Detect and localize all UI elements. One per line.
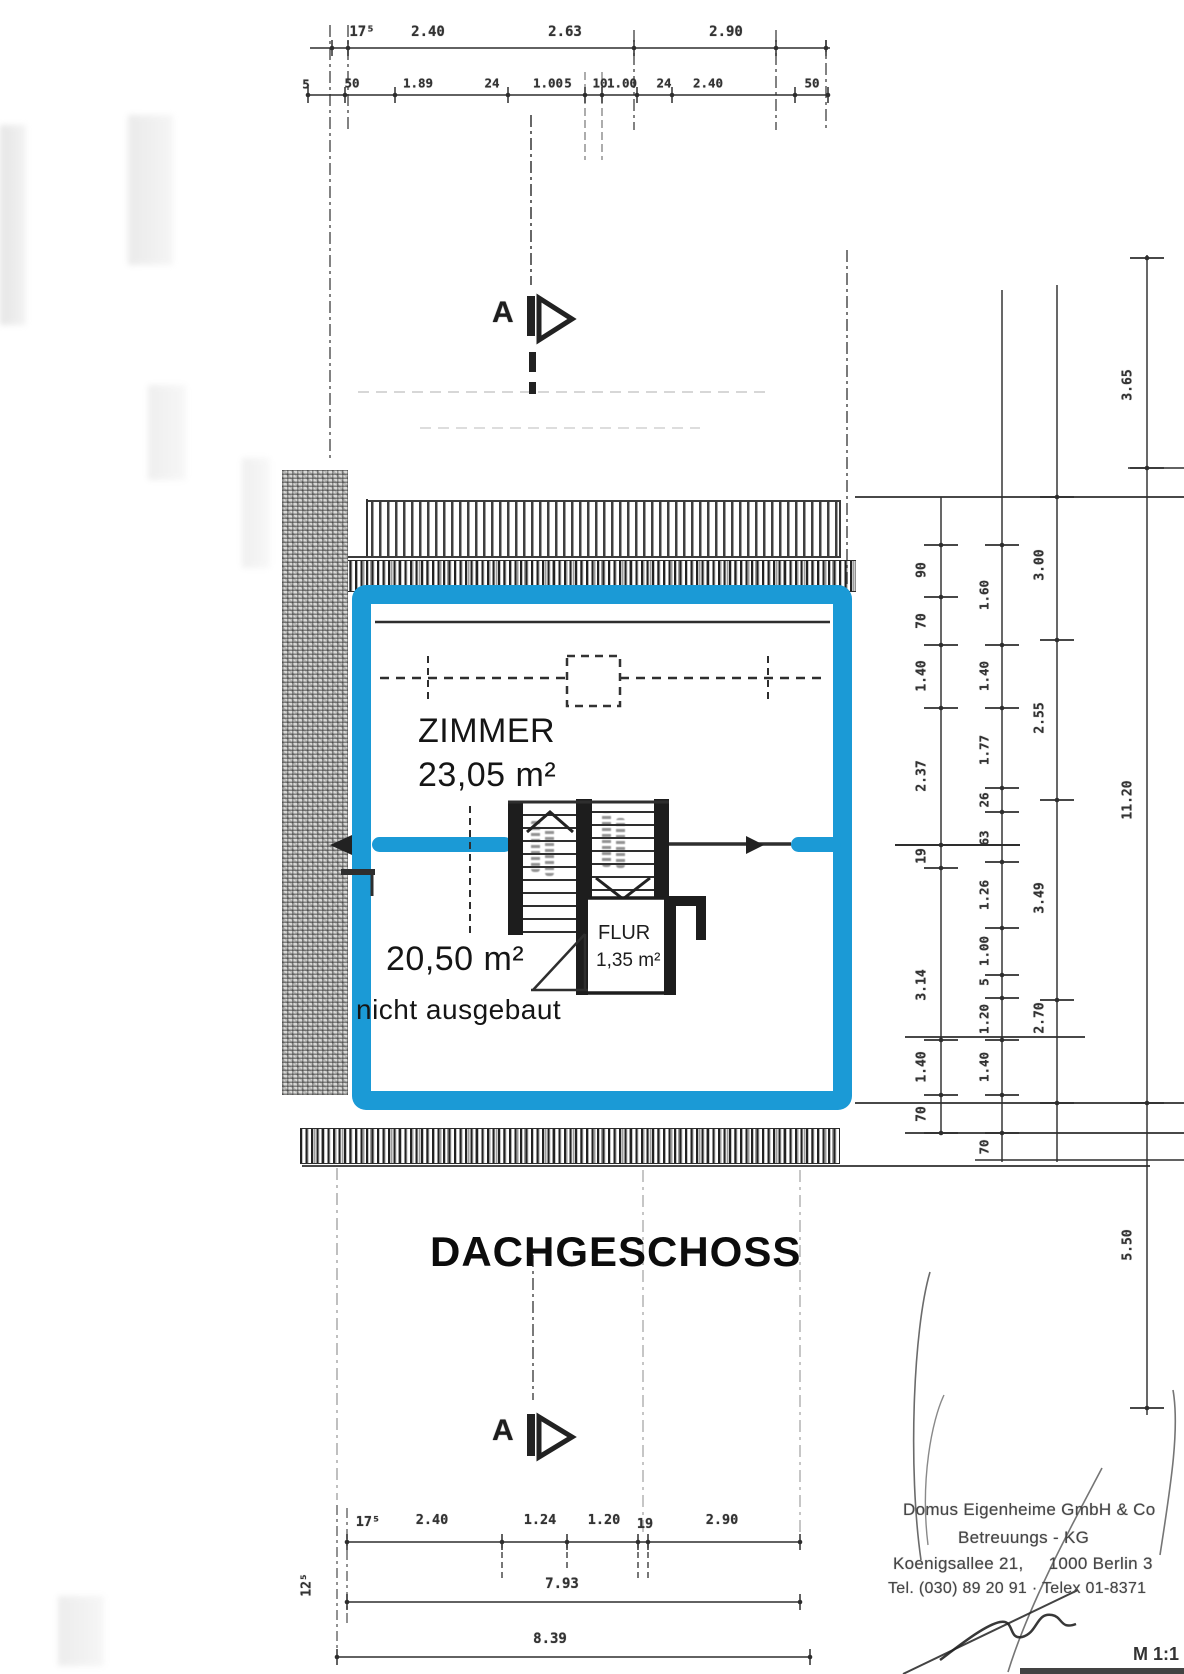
dimension-label: 2.55: [1033, 702, 1048, 733]
dimension-label: 1.20: [588, 1512, 621, 1528]
dimension-label: 70: [977, 1139, 992, 1154]
section-marker-letter-bottom: A: [492, 1414, 514, 1448]
highlight-divider-right: [791, 837, 841, 852]
dimension-label: 5.50: [1121, 1229, 1136, 1260]
dimension-label: 5: [302, 77, 310, 92]
dimension-label: 1.00: [977, 936, 992, 966]
scan-artifact: [0, 125, 26, 325]
section-marker-bar: [527, 296, 535, 336]
dimension-label: 2.90: [709, 24, 743, 40]
dimension-label: 1.40: [915, 660, 930, 691]
dimension-side-label: 12⁵: [300, 1573, 315, 1596]
stamp-line: Koenigsallee 21, 1000 Berlin 3: [893, 1554, 1153, 1574]
stamp-line: Betreuungs - KG: [958, 1528, 1089, 1548]
dimension-label: 1.26: [977, 880, 992, 910]
dimension-label: 1.24: [524, 1512, 557, 1528]
dimension-label: 10: [592, 76, 607, 91]
dimension-label: 17⁵: [356, 1514, 380, 1530]
stamp-line: Domus Eigenheime GmbH & Co: [903, 1500, 1156, 1520]
scan-artifact: [128, 115, 173, 265]
dimension-label: 63: [977, 830, 992, 845]
highlight-divider-left: [372, 837, 512, 852]
left-gable-wall: [282, 470, 348, 1095]
stamp-line: Tel. (030) 89 20 91 · Telex 01-8371: [888, 1580, 1146, 1598]
dimension-label: 1.40: [977, 1052, 992, 1082]
dimension-label: 26: [977, 792, 992, 807]
lower-wall-band: [300, 1128, 840, 1164]
dimension-label: 3.65: [1121, 369, 1136, 400]
dimension-label: 50: [804, 76, 819, 91]
room-flur-area: 1,35 m²: [596, 950, 660, 972]
dimension-label: 1.60: [977, 580, 992, 610]
attic-area: 20,50 m²: [386, 940, 524, 979]
dimension-label: 1.40: [977, 661, 992, 691]
dimension-label: 1.00: [607, 76, 637, 91]
attic-note: nicht ausgebaut: [356, 994, 561, 1026]
scale-label: M 1:1: [1133, 1644, 1179, 1665]
scan-artifact: [148, 385, 186, 480]
section-marker-bar: [527, 1414, 535, 1456]
dimension-label: 50: [344, 76, 359, 91]
dimension-total-label: 7.93: [545, 1576, 579, 1592]
section-marker-dash: [529, 352, 536, 372]
dimension-label: 17⁵: [349, 24, 374, 40]
dimension-label: 2.63: [548, 24, 582, 40]
dimension-label: 19: [637, 1516, 653, 1532]
dimension-label: 70: [915, 613, 930, 629]
dimension-label: 2.37: [915, 760, 930, 791]
stair-annotation-smudge: [545, 828, 554, 876]
scan-cutoff-smear: [1020, 1668, 1184, 1674]
dimension-label: 2.40: [411, 24, 445, 40]
dimension-total-label: 8.39: [533, 1631, 567, 1647]
dimension-label: 19: [915, 848, 930, 864]
stair-annotation-smudge: [602, 812, 611, 867]
floorplan-page: ZIMMER 23,05 m² 20,50 m² nicht ausgebaut…: [0, 0, 1184, 1674]
floor-title: DACHGESCHOSS: [430, 1228, 801, 1276]
dimension-label: 2.90: [706, 1512, 739, 1528]
room-zimmer-area: 23,05 m²: [418, 756, 556, 795]
scan-artifact: [58, 1596, 104, 1666]
dimension-label: 2.70: [1033, 1002, 1048, 1033]
section-marker-dash: [529, 382, 536, 394]
dimension-label: 2.40: [693, 76, 723, 91]
dimension-label: 24: [484, 76, 499, 91]
roof-overhang-band: [345, 500, 841, 558]
dimension-label: 5: [564, 76, 572, 91]
dimension-label: 1.89: [403, 76, 433, 91]
dimension-label: 1.40: [915, 1051, 930, 1082]
dimension-label: 1.20: [977, 1004, 992, 1034]
dimension-label: 5: [977, 978, 992, 986]
dimension-label: 24: [656, 76, 671, 91]
stair-annotation-smudge: [616, 818, 625, 868]
room-flur-name: FLUR: [598, 922, 650, 945]
dimension-label: 2.40: [416, 1512, 449, 1528]
dimension-label: 70: [915, 1106, 930, 1122]
dimension-label: 11.20: [1121, 780, 1136, 819]
scan-artifact: [242, 458, 270, 568]
stair-annotation-smudge: [531, 820, 540, 872]
dimension-label: 90: [915, 562, 930, 578]
dimension-label: 3.14: [915, 969, 930, 1000]
section-marker-letter-top: A: [492, 296, 514, 330]
dimension-label: 1.00: [533, 76, 563, 91]
dimension-label: 1.77: [977, 735, 992, 765]
room-zimmer-name: ZIMMER: [418, 712, 555, 751]
dimension-label: 3.00: [1033, 549, 1048, 580]
dimension-label: 3.49: [1033, 882, 1048, 913]
